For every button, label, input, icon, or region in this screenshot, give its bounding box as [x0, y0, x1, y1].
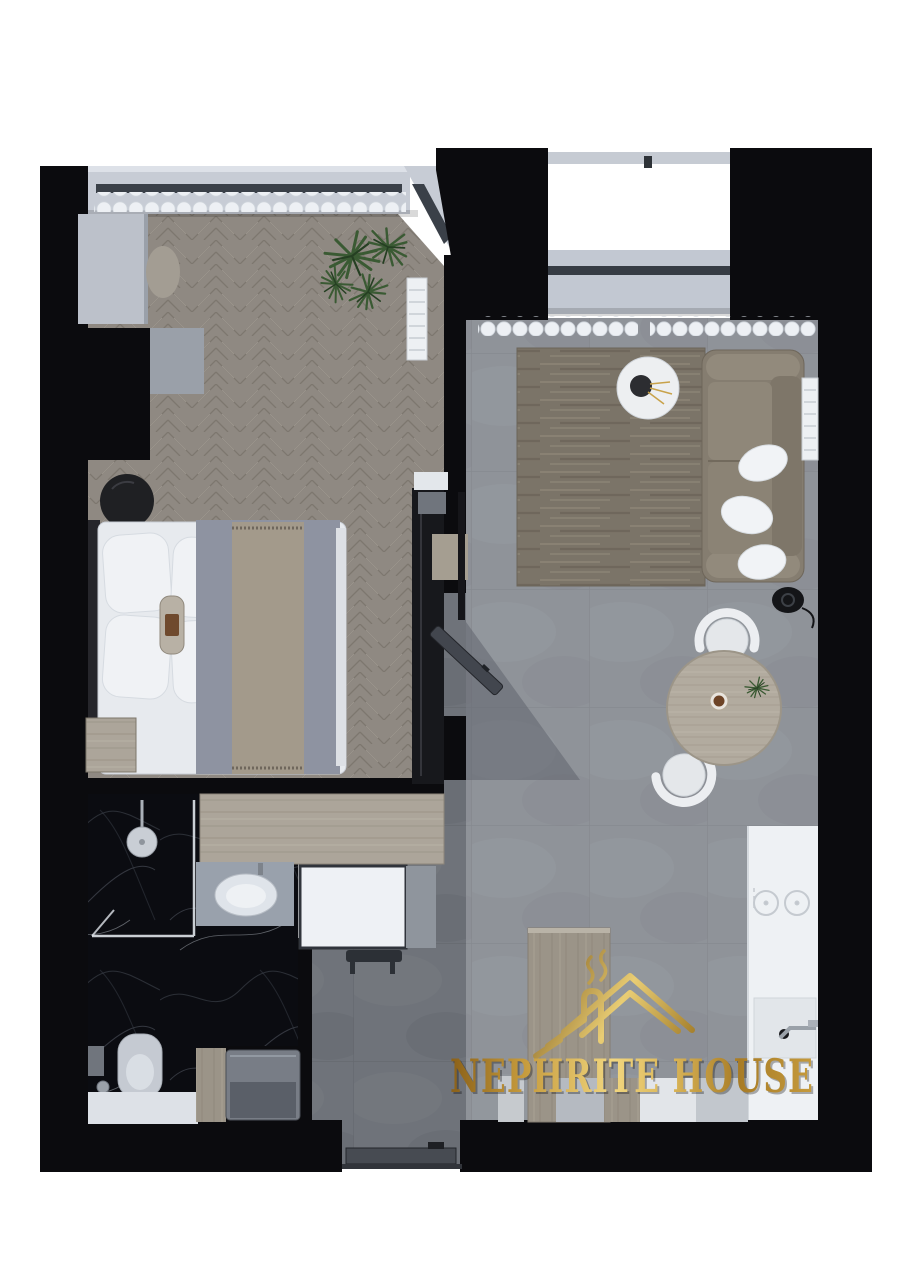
bedroom-radiator — [407, 278, 427, 360]
wall-living-bottom — [460, 1120, 872, 1172]
living-curtain-right — [650, 316, 816, 336]
coffee-table-decor — [630, 375, 652, 397]
wall-living-top-right — [730, 148, 872, 320]
living-curtain-left — [478, 316, 638, 336]
bed-runner — [232, 522, 304, 774]
bathroom-sliding-door — [300, 866, 406, 948]
wall-mid-lower — [444, 716, 466, 780]
living-radiator — [802, 378, 818, 460]
bedroom-tall-wardrobe-line — [420, 496, 422, 776]
shelf-box-white — [414, 472, 448, 490]
door-side-panel — [406, 866, 436, 948]
floor-drain — [97, 1081, 109, 1093]
wall-left-notch — [88, 328, 150, 460]
bed-footboard — [336, 528, 346, 766]
washing-machine — [226, 1050, 300, 1120]
dressing-stool — [146, 246, 180, 298]
nightstand — [86, 718, 136, 772]
wall-bottom-left — [40, 1120, 342, 1172]
bed-tray — [160, 596, 184, 654]
living-balcony-window — [545, 152, 733, 316]
sofa — [702, 350, 804, 583]
shelf-box-gray — [418, 492, 446, 514]
flush-plate — [88, 1046, 104, 1076]
wall-living-top-left — [466, 148, 548, 320]
low-cabinet — [150, 328, 204, 394]
floor-plan-render: NEPHRITE HOUSE NEPHRITE HOUSE — [0, 0, 904, 1280]
vanity-desk — [200, 794, 444, 864]
apartment-floor-plan: NEPHRITE HOUSE NEPHRITE HOUSE — [0, 0, 904, 1280]
wardrobe-cabinet — [78, 214, 148, 324]
bathroom-sink — [196, 862, 294, 926]
wall-right — [818, 320, 872, 1172]
bathroom-wood-cabinet — [196, 1048, 226, 1122]
wall-bedroom-bottom — [88, 778, 444, 794]
bathtub-ledge — [88, 1092, 198, 1124]
tv-panel — [458, 492, 465, 620]
coffee-table — [617, 357, 679, 419]
bedroom-curtain — [94, 192, 406, 212]
sink-faucet — [258, 863, 263, 875]
logo-text: NEPHRITE HOUSE — [450, 1049, 814, 1103]
